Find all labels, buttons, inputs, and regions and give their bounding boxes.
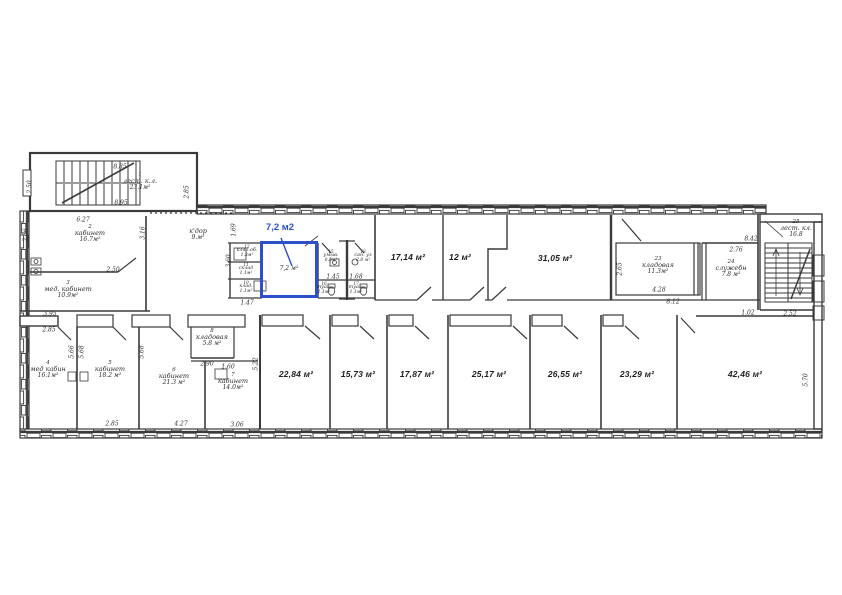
- dim-label: 8.12: [666, 299, 679, 306]
- bottom-masonry-wall: [20, 429, 822, 438]
- dim-label: 2.52: [783, 311, 796, 318]
- room-label-kabinet-7: 7кабинет14.0м²: [218, 372, 248, 392]
- dim-label: 3.95: [43, 311, 56, 318]
- dim-label: 8.85: [113, 164, 126, 171]
- room-label-stair-25: 25лест. кл.16.8: [780, 219, 812, 239]
- highlight-room-label: 7,2 м²: [280, 266, 299, 273]
- room-label-koridor: к'дор9.м²: [189, 228, 207, 242]
- room-label-kabinet-5: 5кабинет18.2 м²: [95, 360, 125, 380]
- office-area-label: 23,29 м²: [620, 369, 654, 379]
- dim-label: 1.02: [741, 310, 754, 317]
- office-area-label: 17,87 м²: [400, 369, 434, 379]
- room-label-tual-17: 17туал.1.1м²: [349, 282, 364, 296]
- office-area-label: 22,84 м²: [279, 369, 313, 379]
- office-area-label: 42,46 м²: [728, 369, 762, 379]
- double-door-icon: [68, 372, 88, 381]
- room-label-kladovaya-8: 8кладовая5.8 м²: [196, 328, 228, 348]
- dim-label: 2.85: [42, 327, 55, 334]
- room-label-umyv-15: 15умыв.0.5м²: [324, 250, 339, 264]
- floor-plan-canvas: 7,2 м2 7,2 м² 1лест. к.л.23.1м² 2кабинет…: [0, 0, 842, 595]
- dim-label: 5.66: [69, 345, 76, 358]
- room-label-sanuz-18: 18сан. уз2.8 м²: [354, 250, 371, 264]
- dim-label: 6.27: [76, 217, 89, 224]
- dim-label: 1.60: [221, 364, 234, 371]
- room-label-kabinet-2: 2кабинет16.7м²: [75, 224, 105, 244]
- dim-label: 2.85: [105, 421, 118, 428]
- hall-area-label: 12 м²: [449, 252, 471, 262]
- office-area-label: 15,73 м²: [341, 369, 375, 379]
- hall-area-label: 17,14 м²: [391, 252, 425, 262]
- dim-label: 3.06: [230, 422, 243, 429]
- dim-label: 2.66: [23, 228, 30, 241]
- dim-label: 1.69: [231, 223, 238, 236]
- highlight-area-callout[interactable]: 7,2 м2: [266, 222, 294, 233]
- dim-label: 5.68: [79, 345, 86, 358]
- dim-label: 1.47: [240, 300, 253, 307]
- dim-label: 4.27: [174, 421, 187, 428]
- room-label-med-kabinet-3: 3мед. кабинет10.9м²: [44, 280, 92, 300]
- dim-label: 2.85: [184, 185, 191, 198]
- room-label-kabinet-6: 6кабинет21.3 м²: [159, 367, 189, 387]
- dim-label: 1.45: [326, 274, 339, 281]
- office-area-label: 25,17 м²: [472, 369, 506, 379]
- room-label-klad-10: 10клад.1.1м²: [239, 281, 252, 295]
- dim-label: 3.60: [226, 254, 233, 267]
- dim-label: 8.95: [114, 200, 127, 207]
- dim-label: 5.70: [803, 373, 810, 386]
- floor-plan-drawing: [0, 0, 842, 595]
- dim-label: 4.28: [652, 287, 665, 294]
- office-area-label: 26,55 м²: [548, 369, 582, 379]
- dim-label: 2.76: [729, 247, 742, 254]
- top-masonry-wall: [197, 205, 766, 214]
- room-label-sklad-11: 11склад1.1м²: [239, 263, 254, 277]
- dim-label: 8.42: [744, 236, 757, 243]
- dim-label: 1.68: [349, 274, 362, 281]
- dim-label: 3.16: [140, 226, 147, 239]
- room-label-kladovaya-23: 23кладовая11.3м²: [642, 256, 674, 276]
- hall-area-label: 31,05 м²: [538, 253, 572, 263]
- room-label-med-kabin-4: 4мед кабин16.1м²: [30, 360, 66, 380]
- right-wall: [814, 222, 822, 429]
- room-label-stair-1: 1лест. к.л.23.1м²: [123, 172, 157, 192]
- dim-label: 2.50: [27, 180, 34, 193]
- dim-label: 2.50: [106, 267, 119, 274]
- room-label-klad-ob-12: 12клад.об.1.3м²: [237, 245, 258, 259]
- stair-block-1-walls: [23, 153, 197, 211]
- dim-label: 2.65: [617, 262, 624, 275]
- dim-label: 5.22: [253, 357, 260, 370]
- dim-label: 2.90: [200, 361, 213, 368]
- room-label-tual-16: 16туал.1.1м²: [317, 282, 332, 296]
- room-label-sluzhebn-24: 24служебн7.8 м²: [715, 259, 746, 279]
- dim-label: 5.68: [139, 345, 146, 358]
